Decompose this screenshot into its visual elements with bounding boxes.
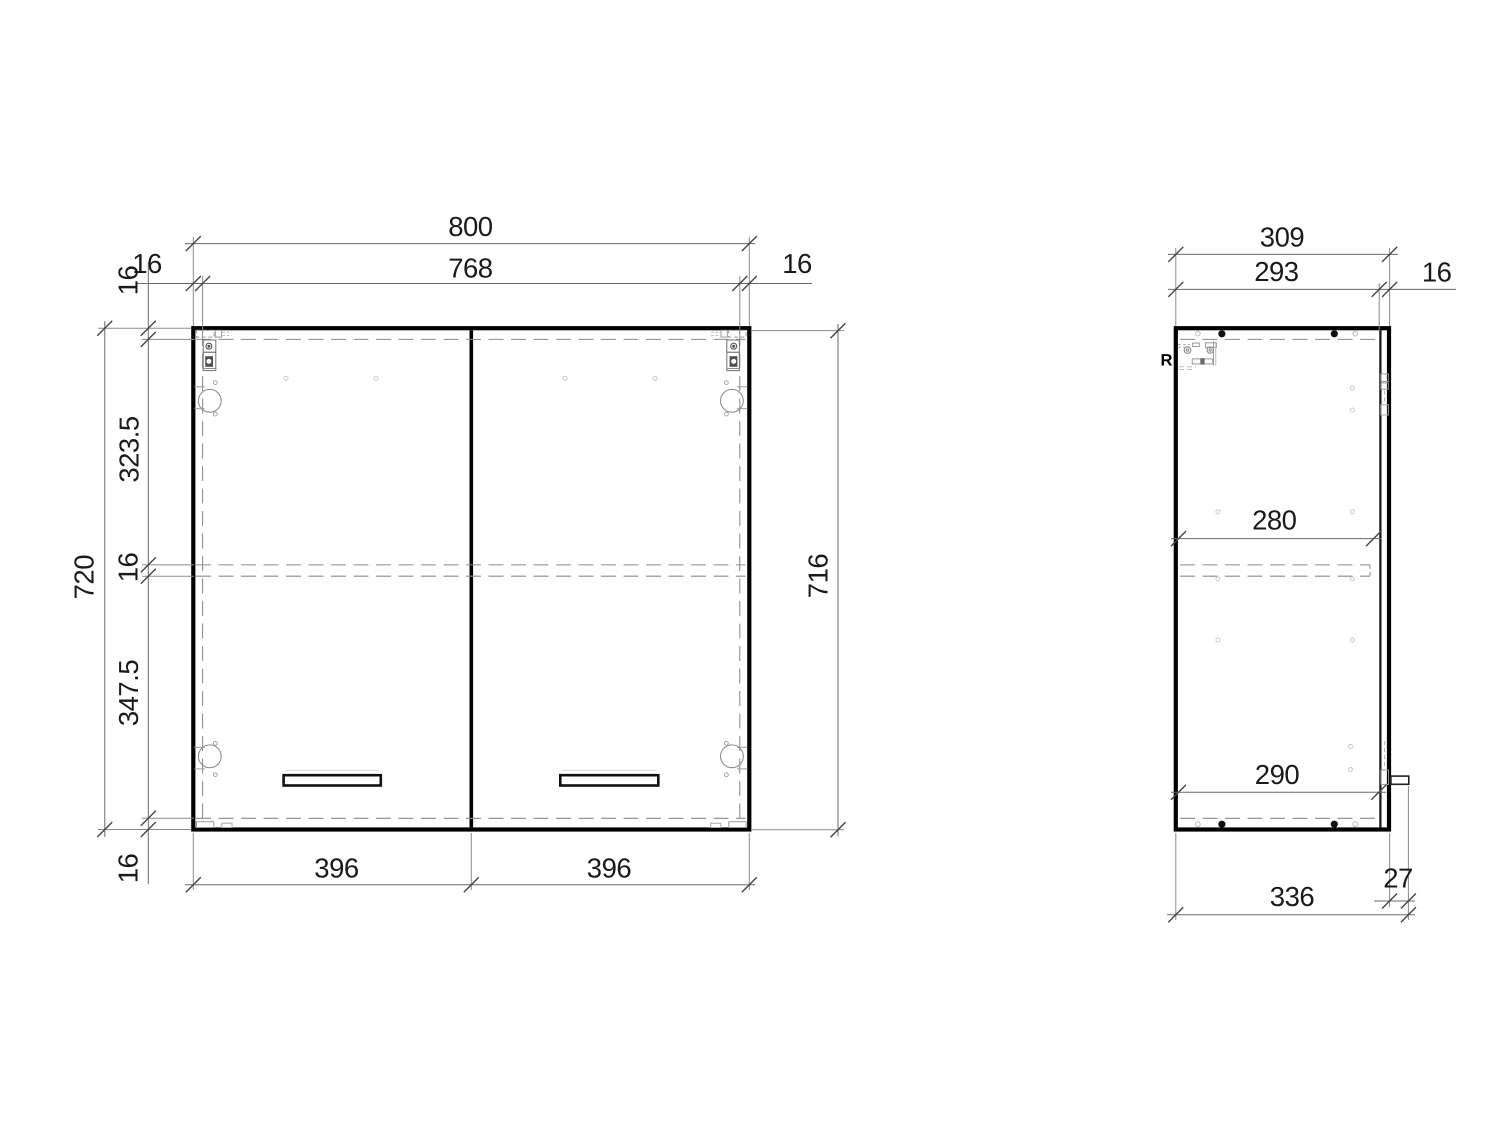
svg-text:396: 396 bbox=[314, 853, 359, 884]
svg-text:280: 280 bbox=[1252, 505, 1297, 536]
svg-text:16: 16 bbox=[1422, 257, 1452, 288]
svg-text:323.5: 323.5 bbox=[113, 416, 144, 483]
svg-text:16: 16 bbox=[112, 553, 143, 583]
svg-text:716: 716 bbox=[802, 554, 833, 599]
svg-text:396: 396 bbox=[587, 853, 632, 884]
svg-text:16: 16 bbox=[782, 248, 812, 279]
svg-text:720: 720 bbox=[69, 555, 100, 600]
svg-text:27: 27 bbox=[1383, 863, 1413, 894]
svg-text:290: 290 bbox=[1255, 759, 1300, 790]
svg-text:16: 16 bbox=[112, 854, 143, 884]
svg-text:293: 293 bbox=[1254, 256, 1299, 287]
svg-text:R: R bbox=[1161, 352, 1173, 370]
svg-text:800: 800 bbox=[448, 211, 493, 242]
svg-text:347.5: 347.5 bbox=[113, 660, 144, 727]
svg-text:309: 309 bbox=[1260, 221, 1304, 252]
svg-text:16: 16 bbox=[112, 266, 143, 296]
svg-text:336: 336 bbox=[1270, 881, 1315, 912]
svg-text:768: 768 bbox=[448, 253, 493, 284]
